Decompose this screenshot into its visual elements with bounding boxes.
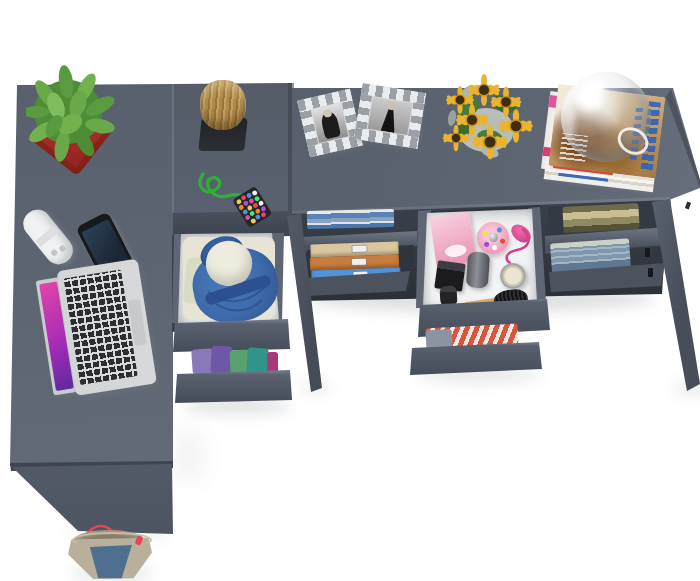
laptop bbox=[35, 259, 158, 402]
khaki-clothes bbox=[562, 203, 639, 233]
laptop-keyboard bbox=[64, 269, 138, 385]
charger-dot-2 bbox=[58, 244, 66, 252]
perfume-cap bbox=[489, 233, 498, 242]
dome-rim-highlight bbox=[565, 106, 575, 140]
tote-bag bbox=[64, 500, 156, 580]
hinge-1 bbox=[645, 248, 650, 257]
floor-shadow-left-wing-edge bbox=[170, 428, 206, 484]
left-corner-seam bbox=[172, 84, 174, 212]
charger-band bbox=[36, 226, 60, 247]
metal-flask bbox=[466, 251, 490, 288]
product-photo-l-desk bbox=[0, 0, 700, 581]
folded-blue-clothes bbox=[307, 209, 394, 229]
picture-frame-2 bbox=[354, 83, 426, 148]
frame2-photo bbox=[368, 97, 413, 135]
box-label bbox=[352, 259, 366, 265]
hoodie-folds bbox=[196, 252, 280, 322]
desk-leg-right bbox=[649, 198, 700, 392]
glass-dome bbox=[561, 72, 651, 162]
keyboard-columns bbox=[64, 269, 138, 385]
cactus bbox=[26, 62, 122, 162]
photo2-figure bbox=[381, 107, 399, 133]
box-label bbox=[352, 246, 366, 252]
page-stripe-blue bbox=[558, 173, 608, 182]
dome-specular bbox=[577, 77, 608, 101]
wood-stump bbox=[200, 80, 246, 130]
clothes-drawer-front bbox=[174, 368, 294, 405]
pink-box-label bbox=[443, 242, 469, 259]
photo2-face bbox=[387, 102, 396, 111]
atomizer-cord bbox=[501, 226, 535, 266]
sunflower-bouquet bbox=[438, 68, 538, 164]
beaded-keychain bbox=[193, 168, 277, 230]
hinge-3 bbox=[685, 202, 691, 210]
jeans-folds bbox=[550, 243, 630, 264]
charger-dot-1 bbox=[50, 248, 58, 256]
hinge-2 bbox=[648, 268, 653, 277]
